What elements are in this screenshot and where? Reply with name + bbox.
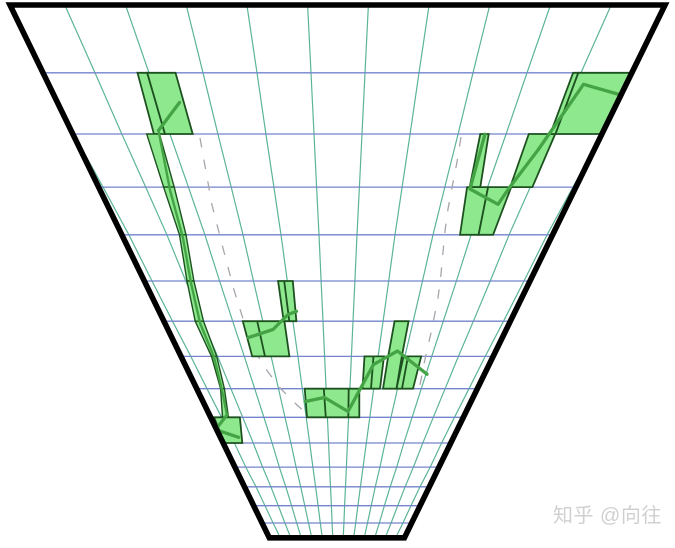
- svg-text:知乎 @向往: 知乎 @向往: [553, 504, 662, 527]
